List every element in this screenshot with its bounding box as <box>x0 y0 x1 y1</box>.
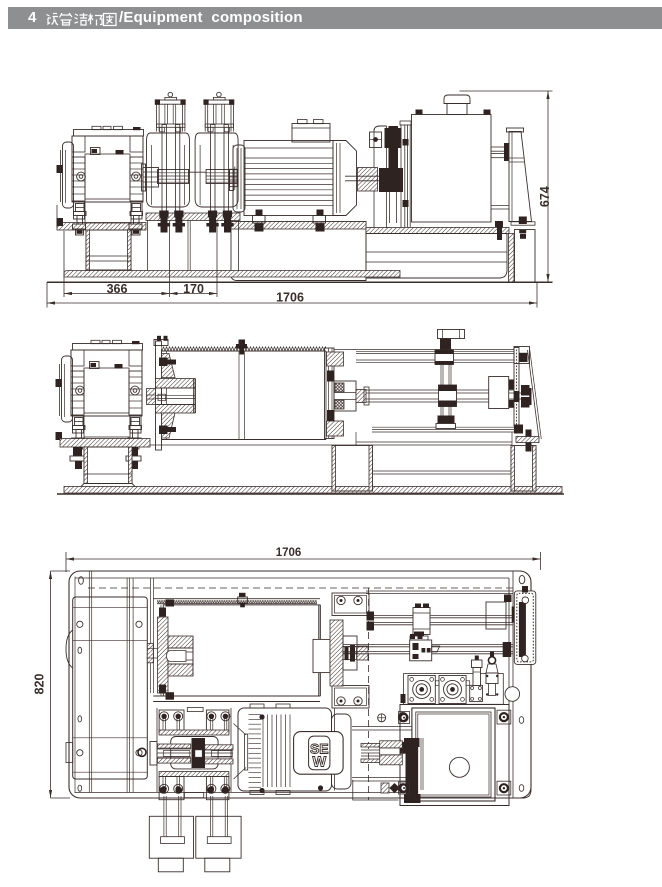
svg-text:820: 820 <box>33 674 47 695</box>
svg-text:1706: 1706 <box>276 291 304 305</box>
svg-text:170: 170 <box>183 282 204 296</box>
svg-text:W: W <box>312 755 326 771</box>
svg-text:366: 366 <box>107 282 128 296</box>
svg-text:1706: 1706 <box>276 547 302 559</box>
svg-text:674: 674 <box>538 186 552 207</box>
